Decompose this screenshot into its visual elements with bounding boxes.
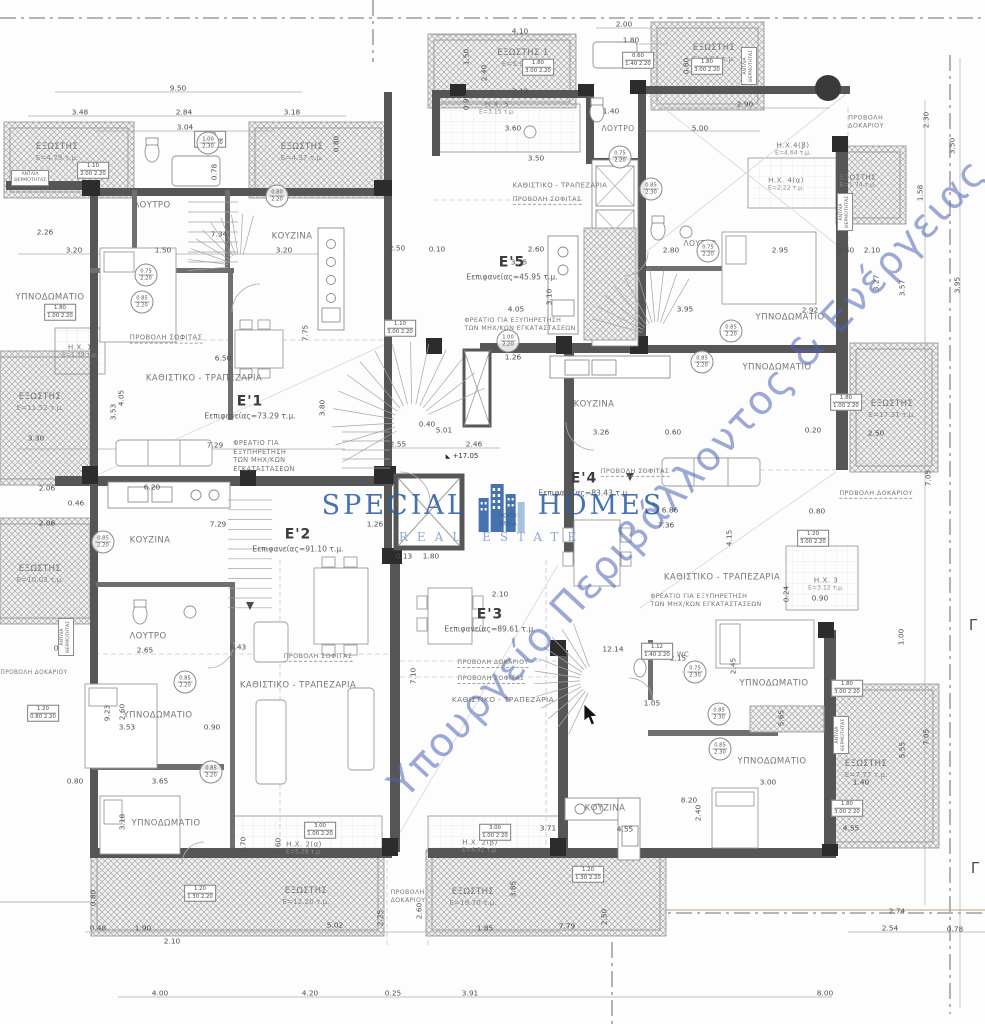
- dimension-text: 0.40: [419, 420, 435, 429]
- dimension-text: 0.25: [385, 989, 401, 998]
- dimension-text: 3.95: [953, 277, 962, 293]
- dimension-text: 6.20: [144, 483, 160, 492]
- window-tag: 1.201.30 2.20: [184, 885, 216, 902]
- room-label: ΠΡΟΒΟΛΗ ΣΟΦΙΤΑΣ: [284, 652, 353, 660]
- room-label: Η.Χ. 5Ε=3.15 τ.μ.: [479, 99, 515, 116]
- dimension-text: 8.43: [230, 643, 246, 652]
- window-tag: 1.803.00 2.20: [831, 680, 863, 697]
- dimension-text: 5.65: [777, 710, 786, 726]
- dimension-text: 1.80: [423, 552, 439, 561]
- room-label: ΚΑΘΙΣΤΙΚΟ - ΤΡΑΠΕΖΑΡΙΑ: [452, 695, 554, 705]
- dimension-text: 1.40: [853, 778, 869, 787]
- dimension-text: 1.70: [239, 837, 248, 853]
- dimension-text: 6.50: [215, 354, 231, 363]
- room-label: ΠΡΟΒΟΛΗ ΣΟΦΙΤΑΣ: [130, 334, 203, 343]
- brand-logo: SPECIAL HOMES: [322, 476, 665, 534]
- door-tag: 0.852.30: [709, 738, 732, 761]
- room-label: ΚΟΥΖΙΝΑ: [574, 399, 615, 410]
- dimension-text: 2.45: [729, 658, 738, 674]
- room-label: ΕΞΩΣΤΗΣΕ=17.31 τ.μ.: [868, 399, 915, 419]
- dimension-text: 2.50: [389, 244, 405, 253]
- dimension-text: 2.06: [39, 484, 55, 493]
- dimension-text: 1.58: [916, 185, 925, 201]
- room-label: ΠΡΟΒΟΛΗ ΔΟΚΑΡΙΟΥ: [457, 659, 528, 667]
- apartment-label: E'1Εεπιφανείας=73.29 τ.μ.: [204, 394, 295, 421]
- dimension-text: 0.13: [396, 552, 412, 561]
- dimension-text: 3.53: [119, 723, 135, 732]
- room-label: Η.Χ.4(β)Ε=4.64 τ.μ.: [775, 140, 811, 157]
- dimension-text: 7.75: [301, 325, 310, 341]
- room-label: ΕΞΩΣΤΗΣΕ=11.52 τ.μ.: [16, 392, 63, 412]
- dimension-text: 2.60: [415, 903, 424, 919]
- dimension-text: 0.10: [429, 245, 445, 254]
- room-label: ΚΑΘΙΣΤΙΚΟ - ΤΡΑΠΕΖΑΡΙΑ: [513, 182, 608, 191]
- dimension-text: 2.90: [737, 100, 753, 109]
- dimension-text: 3.20: [276, 246, 292, 255]
- dimension-text: 3.10: [545, 289, 554, 305]
- door-tag: 0.852.30: [708, 703, 731, 726]
- dimension-text: 0.90: [462, 94, 471, 110]
- dimension-text: 7.29: [210, 520, 226, 529]
- dimension-text: 0.90: [812, 594, 828, 603]
- window-tag: 1.102.00 2.20: [77, 162, 109, 179]
- dimension-text: 2.10: [164, 937, 180, 946]
- dimension-text: 4.55: [617, 825, 633, 834]
- window-tag: 3.001.00 2.20: [479, 824, 511, 841]
- dimension-text: 7.05: [924, 470, 933, 486]
- dimension-text: 3.57: [898, 280, 907, 296]
- door-tag: 0.852.20: [92, 531, 115, 554]
- heat-pump-box: ΑΝΤΛΙΑ ΘΕΡΜΟΤΗΤΑΣ: [58, 618, 74, 656]
- dimension-text: 2.10: [864, 246, 880, 255]
- room-label: ΚΟΥΖΙΝΑ: [585, 803, 626, 814]
- dimension-text: 2.54: [882, 924, 898, 933]
- dimension-text: 8.20: [681, 796, 697, 805]
- room-label: Η.Χ. 2(α)Ε=5.28 τ.μ.: [286, 839, 322, 856]
- dimension-text: 5.55: [898, 742, 907, 758]
- window-tag: 1.201.30 2.20: [572, 866, 604, 883]
- room-label: ΚΟΥΖΙΝΑ: [272, 231, 313, 242]
- dimension-text: 2.10: [492, 590, 508, 599]
- dimension-text: 1.26: [505, 353, 521, 362]
- dimension-text: 0.20: [805, 426, 821, 435]
- dimension-text: 1.05: [644, 699, 660, 708]
- dimension-text: 2.25: [376, 910, 385, 926]
- dimension-text: 0.80: [332, 136, 341, 152]
- dimension-text: 2.06: [39, 519, 55, 528]
- dimension-text: 2.84: [176, 108, 192, 117]
- door-tag: 0.802.20: [266, 185, 289, 208]
- dimension-text: 0.46: [68, 499, 84, 508]
- dimension-text: 2.30: [922, 112, 931, 128]
- dimension-text: 1.85: [477, 924, 493, 933]
- dimension-text: 3.18: [284, 108, 300, 117]
- dimension-text: 2.46: [466, 440, 482, 449]
- door-tag: 0.752.20: [609, 146, 632, 169]
- dimension-text: 5.00: [692, 124, 708, 133]
- dimension-text: 0.60: [665, 428, 681, 437]
- dimension-text: 3.00: [760, 778, 776, 787]
- dimension-text: 2.50: [600, 909, 609, 925]
- room-label: ΥΠΝΟΔΩΜΑΤΙΟ: [738, 756, 807, 767]
- room-label: ΕΞΩΣΤΗΣΕ=19.70 τ.μ.: [449, 887, 496, 907]
- door-tag: 0.852.20: [131, 291, 154, 314]
- dimension-text: 2.50: [868, 429, 884, 438]
- dimension-text: 2.40: [694, 805, 703, 821]
- room-label: Η.Χ. 3Ε=3.12 τ.μ.: [808, 575, 844, 592]
- dimension-text: 8.00: [817, 989, 833, 998]
- room-label: ΕΞΩΣΤΗΣΕ=4.37 τ.μ.: [281, 142, 324, 162]
- dimension-text: 3.18: [118, 814, 127, 830]
- dimension-text: 2.65: [137, 646, 153, 655]
- dimension-text: 7.10: [409, 668, 418, 684]
- heat-pump-box: ΑΝΤΛΙΑ ΘΕΡΜΟΤΗΤΑΣ: [833, 716, 849, 754]
- dimension-text: 3.55: [511, 258, 527, 267]
- dimension-text: 3.91: [462, 989, 478, 998]
- door-tag: 1.002.20: [497, 330, 520, 353]
- dimension-text: 0.90: [204, 723, 220, 732]
- dimension-text: 0.24: [782, 586, 791, 602]
- door-tag: 0.852.20: [200, 761, 223, 784]
- dimension-text: 5.02: [327, 921, 343, 930]
- dimension-text: 2.74: [889, 907, 905, 916]
- window-tag: 0.601.40 2.20: [622, 52, 654, 69]
- window-tag: 1.803.00 2.20: [522, 59, 554, 76]
- dimension-text: 0.60: [838, 246, 854, 255]
- window-tag: 1.200.80 2.20: [27, 705, 59, 722]
- dimension-text: 3.95: [677, 305, 693, 314]
- dimension-text: 2.40: [480, 65, 489, 81]
- room-label: ΚΑΘΙΣΤΙΚΟ - ΤΡΑΠΕΖΑΡΙΑ: [240, 680, 356, 691]
- door-tag: 0.752.30: [684, 661, 707, 684]
- dimension-text: 3.48: [72, 108, 88, 117]
- dimension-text: 0.80: [682, 58, 691, 74]
- logo-subtitle: REAL ESTATE: [399, 530, 585, 544]
- dimension-text: 1.60: [274, 838, 283, 854]
- dimension-text: 3.65: [152, 777, 168, 786]
- dimension-text: 12.14: [602, 645, 623, 654]
- room-label: ΥΠΝΟΔΩΜΑΤΙΟ: [16, 292, 85, 303]
- dimension-text: 0.80: [809, 507, 825, 516]
- dimension-text: 7.29: [207, 441, 223, 450]
- door-tag: 0.852.20: [174, 671, 197, 694]
- logo-word-special: SPECIAL: [322, 490, 468, 521]
- dimension-text: 4.10: [512, 27, 528, 36]
- room-label: ΛΟΥΤΡΟ: [601, 124, 634, 134]
- door-tag: 0.752.20: [135, 264, 158, 287]
- room-label: ΕΞΩΣΤΗΣΕ=10.03 τ.μ.: [16, 564, 63, 584]
- room-label: ΠΡΟΒΟΛΗ ΣΟΦΙΤΑΣ: [513, 195, 582, 203]
- room-label: ΚΑΘΙΣΤΙΚΟ - ΤΡΑΠΕΖΑΡΙΑ: [146, 373, 262, 384]
- window-tag: 1.103.00 2.20: [384, 320, 416, 337]
- heat-pump-box: ΑΝΤΛΙΑ ΘΕΡΜΟΤΗΤΑΣ: [741, 47, 757, 85]
- dimension-text: 4.55: [843, 824, 859, 833]
- dimension-text: 2.60: [118, 704, 127, 720]
- room-label: ΦΡΕΑΤΙΟ ΓΙΑ ΕΞΥΠΗΡΕΤΗΣΗ ΤΩΝ ΜΗΧ/ΚΩΝ ΕΓΚΑ…: [464, 317, 575, 333]
- room-label: Η.Χ. 4(α)Ε=2.22 τ.μ.: [768, 175, 804, 192]
- room-label: ΠΡΟΒΟΛΗ ΔΟΚΑΡΙΟΥ: [0, 670, 67, 678]
- dimension-text: 3.71: [540, 824, 556, 833]
- apartment-label: E'3Εεπιφανείας=89.61 τ.μ.: [444, 607, 535, 634]
- dimension-text: 0.78: [947, 925, 963, 934]
- dimension-text: 4.00: [152, 989, 168, 998]
- dimension-text: 3.10: [512, 87, 528, 96]
- dimension-text: 3.26: [593, 428, 609, 437]
- room-label: ΚΟΥΖΙΝΑ: [130, 535, 171, 546]
- gamma-marker: Γ: [969, 616, 977, 634]
- elevation-marker: ◣ +17.05: [446, 452, 479, 460]
- door-tag: 0.852.20: [691, 351, 714, 374]
- dimension-text: 1.80: [623, 36, 639, 45]
- room-label: ΥΠΝΟΔΩΜΑΤΙΟ: [124, 710, 193, 721]
- room-label: ΦΡΕΑΤΙΟ ΓΙΑ ΕΞΥΠΗΡΕΤΗΣΗ ΤΩΝ ΜΗΧ/ΚΩΝ ΕΓΚΑ…: [233, 439, 294, 473]
- dimension-text: 2.80: [663, 246, 679, 255]
- dimension-text: 3.53: [109, 404, 118, 420]
- dimension-text: 1.50: [462, 49, 471, 65]
- dimension-text: 2.26: [37, 228, 53, 237]
- dimension-text: 9.50: [170, 84, 186, 93]
- logo-buildings-icon: [477, 476, 529, 534]
- dimension-text: 3.85: [509, 881, 518, 897]
- dimension-text: 2.00: [616, 20, 632, 29]
- room-label: ΕΞΩΣΤΗΣΕ=1.74 τ.μ.: [840, 172, 876, 189]
- dimension-text: 3.80: [318, 400, 327, 416]
- floor-plan: ΕΞΩΣΤΗΣΕ=4.79 τ.μ.ΕΞΩΣΤΗΣΕ=4.37 τ.μ.ΛΟΥΤ…: [0, 0, 985, 1024]
- gamma-marker: Γ: [971, 859, 979, 877]
- dimension-text: 4.20: [302, 989, 318, 998]
- dimension-text: 2.60: [528, 245, 544, 254]
- dimension-text: 3.04: [177, 123, 193, 132]
- heat-pump-box: ΑΝΤΛΙΑ ΘΕΡΜΟΤΗΤΑΣ: [837, 193, 853, 231]
- window-tag: 3.001.00 2.20: [304, 822, 336, 839]
- window-tag: 1.801.00 2.20: [830, 394, 862, 411]
- dimension-text: 3.30: [28, 434, 44, 443]
- room-label: ΥΠΝΟΔΩΜΑΤΙΟ: [132, 818, 201, 829]
- room-label: ΦΡΕΑΤΙΟ ΓΙΑ ΕΞΥΠΗΡΕΤΗΣΗ ΤΩΝ ΜΗΧ/ΚΩΝ ΕΓΚΑ…: [650, 593, 761, 609]
- mouse-cursor: [583, 704, 599, 728]
- room-label: ΠΡΟΒΟΛΗ ΔΟΚΑΡΙΟΥ: [848, 114, 884, 131]
- dimension-text: 7.05: [922, 729, 931, 745]
- window-tag: 1.803.00 2.20: [831, 800, 863, 817]
- heat-pump-box: ΑΝΤΛΙΑ ΘΕΡΜΟΤΗΤΑΣ: [11, 170, 49, 186]
- dimension-text: 0.80: [89, 890, 98, 906]
- dimension-text: 2.55: [390, 440, 406, 449]
- dimension-text: 1.00: [897, 629, 906, 645]
- dimension-text: 3.50: [948, 138, 957, 154]
- room-label: ΕΞΩΣΤΗΣΕ=4.79 τ.μ.: [36, 142, 79, 162]
- dimension-text: 2.95: [772, 246, 788, 255]
- dimension-text: 1.40: [603, 107, 619, 116]
- dimension-text: 3.60: [505, 124, 521, 133]
- dimension-text: 2.92: [802, 306, 818, 315]
- window-tag: 1.803.00 2.20: [691, 58, 723, 75]
- room-label: ΥΠΝΟΔΩΜΑΤΙΟ: [743, 362, 812, 373]
- window-tag: 1.203.00 2.20: [797, 530, 829, 547]
- dimension-text: 9.23: [103, 705, 112, 721]
- room-label: ΕΞΩΣΤΗΣΕ=12.20 τ.μ.: [282, 886, 329, 906]
- dimension-text: 3.50: [528, 154, 544, 163]
- room-label: ΛΟΥΤΡΟ: [129, 631, 166, 642]
- dimension-text: 7.79: [559, 922, 575, 931]
- dimension-text: 0.48: [90, 924, 106, 933]
- dimension-text: 1.50: [155, 246, 171, 255]
- dimension-text: 5.01: [436, 426, 452, 435]
- door-tag: 0.752.20: [697, 240, 720, 263]
- dimension-text: 4.15: [725, 530, 734, 546]
- dimension-text: 4.05: [117, 390, 126, 406]
- door-tag: 0.852.20: [720, 320, 743, 343]
- door-tag: 1.002.30: [197, 132, 220, 155]
- dimension-text: 0.80: [67, 777, 83, 786]
- dimension-text: 3.20: [66, 246, 82, 255]
- window-tag: 1.121.40 2.20: [641, 643, 673, 660]
- dimension-text: 4.05: [508, 305, 524, 314]
- room-label: ΠΡΟΒΟΛΗ ΔΟΚΑΡΙΟΥ: [839, 489, 912, 497]
- room-label: ΛΟΥΤΡΟ: [133, 200, 170, 211]
- room-label: ΕΞΩΣΤΗΣΕ=7.77 τ.μ.: [845, 759, 888, 779]
- dimension-text: 3.27: [872, 275, 881, 291]
- room-label: ΠΡΟΒΟΛΗ ΣΟΦΙΤΑΣ: [458, 675, 525, 683]
- dimension-text: 0.78: [210, 164, 219, 180]
- room-label: ΥΠΝΟΔΩΜΑΤΙΟ: [740, 678, 809, 689]
- window-tag: 1.801.00 2.20: [44, 304, 76, 321]
- dimension-text: 7.34: [211, 230, 227, 239]
- logo-word-homes: HOMES: [538, 490, 665, 521]
- room-label: Η.Χ. 1Ε=1.39 τ.μ.: [62, 342, 98, 359]
- dimension-text: 1.90: [135, 924, 151, 933]
- door-tag: 0.852.30: [640, 178, 663, 201]
- room-label: ΚΑΘΙΣΤΙΚΟ - ΤΡΑΠΕΖΑΡΙΑ: [664, 572, 780, 583]
